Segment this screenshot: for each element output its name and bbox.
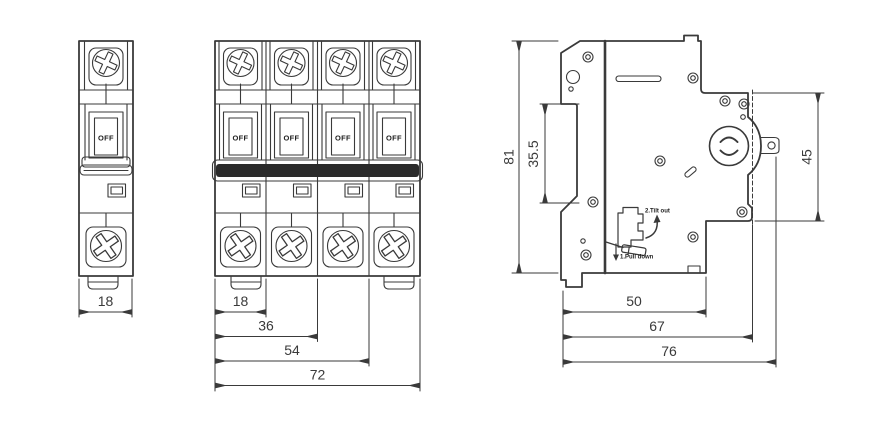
- mounting-foot-tab: [384, 276, 414, 289]
- tilt-out-label: 2.Tilt out: [645, 209, 670, 215]
- vent-slot: [616, 76, 661, 82]
- toggle-off-label-pole4: OFF: [386, 134, 402, 143]
- four-pole-front-view: OFF OFF OFF OFF 18 36 54 72: [213, 41, 423, 391]
- technical-drawing: OFF 18 OFF OFF OFF OFF: [0, 0, 896, 421]
- dim-label-36: 36: [258, 318, 274, 334]
- din-clip-icon: [618, 208, 643, 248]
- dim-label-18: 18: [98, 293, 114, 309]
- dim-label-81: 81: [501, 149, 517, 165]
- mcb-dimension-drawing: OFF 18 OFF OFF OFF OFF: [0, 0, 896, 421]
- toggle-off-label-pole2: OFF: [284, 134, 300, 143]
- dim-label-45: 45: [799, 149, 815, 165]
- pin-hole: [569, 87, 573, 91]
- pole-1-internals: [219, 41, 262, 267]
- dim-label-67: 67: [649, 318, 665, 334]
- mounting-foot-tab: [88, 276, 118, 289]
- dim-label-35-5: 35.5: [525, 140, 541, 167]
- side-view: 2.Tilt out 1.Pull down 81 35.5 45: [501, 36, 825, 368]
- single-pole-front-view: OFF 18: [79, 41, 133, 317]
- side-profile: [561, 36, 761, 288]
- dim-label-72: 72: [310, 367, 326, 383]
- dim-label-18: 18: [233, 293, 249, 309]
- fixing-hole: [567, 71, 580, 84]
- pull-down-arrowhead-icon: [613, 255, 619, 262]
- dim-label-54: 54: [284, 342, 300, 358]
- pole-4-internals: [373, 41, 416, 267]
- pole-3-internals: [322, 41, 365, 267]
- four-pole-width-dimensions: 18 36 54 72: [215, 279, 420, 391]
- single-pole-width-dimension: 18: [79, 279, 132, 317]
- side-view-dimensions: 81 35.5 45 50 67 76: [501, 41, 825, 367]
- dim-label-76: 76: [661, 343, 677, 359]
- toggle-knob-icon: [710, 127, 749, 166]
- pole-2-internals: [270, 41, 313, 267]
- pin-hole: [741, 115, 746, 120]
- mounting-foot-tab: [231, 276, 261, 289]
- toggle-off-label-pole1: OFF: [233, 134, 249, 143]
- pin-hole: [581, 239, 585, 243]
- pole-internals: [85, 41, 128, 267]
- pull-down-label: 1.Pull down: [620, 255, 654, 261]
- bottom-notch: [688, 266, 700, 273]
- dim-label-50: 50: [626, 293, 642, 309]
- terminal-stub: [761, 138, 779, 154]
- din-clip-instruction: 2.Tilt out 1.Pull down: [606, 208, 670, 262]
- tilt-out-arrowhead-icon: [654, 215, 661, 224]
- spring-pin: [684, 166, 697, 178]
- toggle-off-label-pole3: OFF: [335, 134, 351, 143]
- toggle-off-label: OFF: [98, 134, 114, 143]
